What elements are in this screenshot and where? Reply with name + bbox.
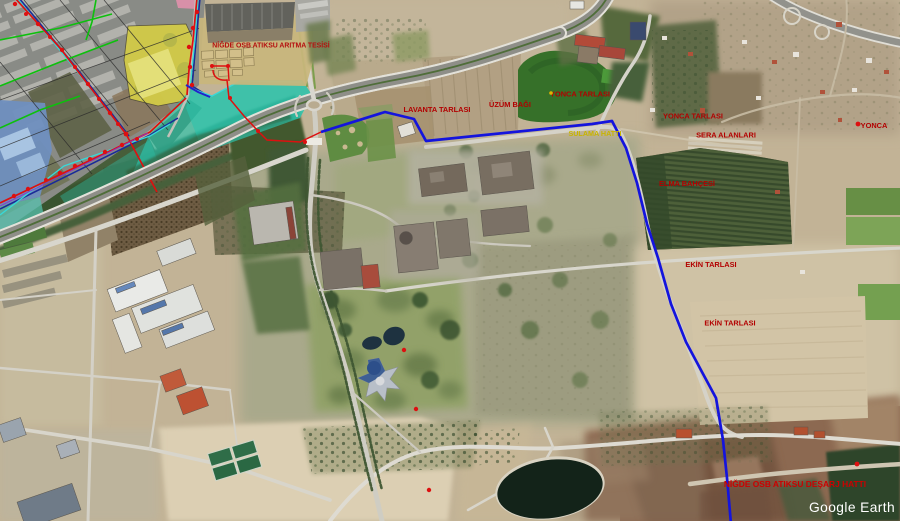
svg-text:SULAMA HATTI: SULAMA HATTI [568, 129, 621, 138]
svg-text:EKİN TARLASI: EKİN TARLASI [685, 260, 736, 269]
svg-text:YONCA TARLASI: YONCA TARLASI [663, 112, 723, 121]
svg-text:NİĞDE OSB ATIKSU DEŞARJ HATTI: NİĞDE OSB ATIKSU DEŞARJ HATTI [724, 478, 866, 489]
svg-text:SERA ALANLARI: SERA ALANLARI [696, 131, 756, 140]
svg-text:YONCA TARLASI: YONCA TARLASI [550, 90, 610, 99]
svg-text:EKİN TARLASI: EKİN TARLASI [704, 319, 755, 328]
svg-text:Google Earth: Google Earth [809, 500, 895, 515]
svg-text:LAVANTA TARLASI: LAVANTA TARLASI [404, 105, 471, 114]
svg-text:ELMA BAHÇESİ: ELMA BAHÇESİ [659, 179, 715, 188]
svg-text:ÜZÜM BAĞI: ÜZÜM BAĞI [489, 100, 531, 109]
svg-text:YONCA: YONCA [861, 121, 888, 130]
svg-text:NİĞDE OSB ATIKSU ARITMA TESİSİ: NİĞDE OSB ATIKSU ARITMA TESİSİ [212, 41, 329, 50]
